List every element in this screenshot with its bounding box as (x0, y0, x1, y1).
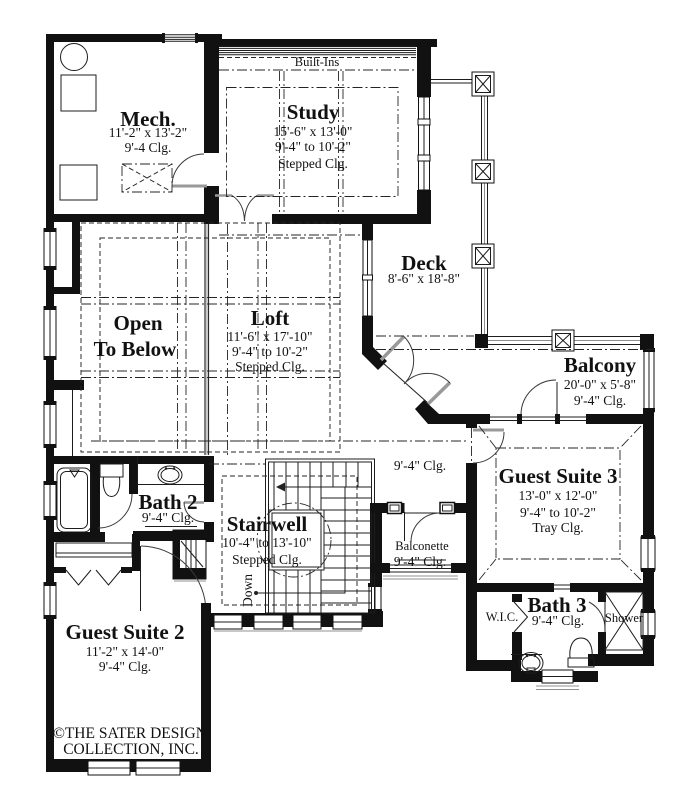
svg-text:COLLECTION, INC.: COLLECTION, INC. (63, 741, 199, 758)
svg-text:11'-6" x 17'-10": 11'-6" x 17'-10" (227, 329, 312, 344)
svg-text:Guest Suite 3: Guest Suite 3 (498, 464, 617, 488)
svg-text:Built-Ins: Built-Ins (295, 55, 340, 69)
svg-text:20'-0" x 5'-8": 20'-0" x 5'-8" (564, 377, 636, 392)
svg-text:8'-6" x 18'-8": 8'-6" x 18'-8" (388, 271, 460, 286)
svg-text:Balcony: Balcony (564, 353, 637, 377)
svg-text:Stairwell: Stairwell (227, 512, 308, 536)
svg-text:W.I.C.: W.I.C. (486, 610, 519, 624)
svg-text:9'-4" Clg.: 9'-4" Clg. (99, 659, 151, 674)
svg-text:Stepped Clg.: Stepped Clg. (278, 156, 348, 171)
svg-text:9'-4" Clg.: 9'-4" Clg. (532, 613, 584, 628)
svg-text:Balconette: Balconette (395, 539, 449, 553)
svg-text:Shower: Shower (605, 611, 644, 625)
svg-text:11'-2" x 14'-0": 11'-2" x 14'-0" (86, 644, 164, 659)
svg-text:11'-2" x 13'-2": 11'-2" x 13'-2" (109, 125, 187, 140)
svg-text:9'-4" Clg.: 9'-4" Clg. (394, 458, 446, 473)
svg-text:Stepped Clg.: Stepped Clg. (235, 359, 305, 374)
svg-text:9'-4" to 10'-2": 9'-4" to 10'-2" (275, 139, 351, 154)
svg-text:Down: Down (240, 574, 255, 607)
svg-text:Stepped Clg.: Stepped Clg. (232, 552, 302, 567)
svg-text:13'-0" x 12'-0": 13'-0" x 12'-0" (519, 488, 598, 503)
svg-text:9'-4" to 10'-2": 9'-4" to 10'-2" (520, 505, 596, 520)
svg-text:9'-4" Clg.: 9'-4" Clg. (574, 393, 626, 408)
svg-text:Study: Study (287, 100, 340, 124)
svg-text:Open: Open (113, 311, 162, 335)
svg-text:Guest Suite 2: Guest Suite 2 (65, 620, 184, 644)
svg-text:9'-4" to 10'-2": 9'-4" to 10'-2" (232, 344, 308, 359)
svg-text:15'-6" x 13'-0": 15'-6" x 13'-0" (274, 124, 353, 139)
svg-text:Tray Clg.: Tray Clg. (532, 520, 583, 535)
svg-text:9'-4" Clg.: 9'-4" Clg. (142, 510, 194, 525)
svg-text:9'-4" Clg.: 9'-4" Clg. (394, 554, 446, 569)
svg-text:10'-4" to 13'-10": 10'-4" to 13'-10" (222, 535, 311, 550)
svg-text:©THE SATER DESIGN: ©THE SATER DESIGN (53, 725, 207, 742)
svg-text:9'-4 Clg.: 9'-4 Clg. (125, 140, 172, 155)
svg-text:To Below: To Below (94, 337, 177, 361)
svg-text:Loft: Loft (251, 306, 290, 330)
